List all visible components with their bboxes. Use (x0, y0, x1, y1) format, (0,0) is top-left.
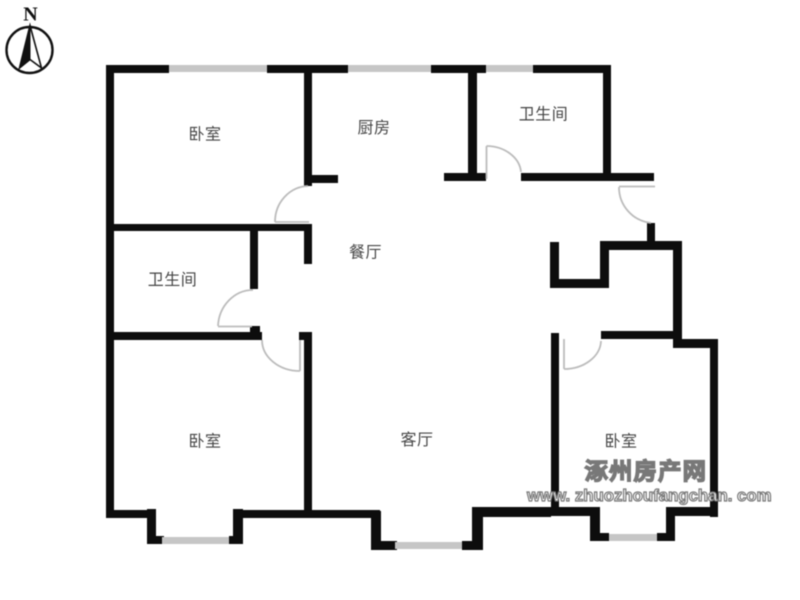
svg-text:涿州房产网: 涿州房产网 (585, 458, 708, 484)
svg-text:卫生间: 卫生间 (519, 106, 569, 124)
svg-text:卧室: 卧室 (604, 433, 637, 451)
svg-text:卧室: 卧室 (188, 433, 221, 451)
svg-text:卧室: 卧室 (188, 126, 221, 144)
svg-text:N: N (23, 4, 38, 26)
svg-text:餐厅: 餐厅 (349, 244, 382, 262)
svg-text:www. zhuozhoufangchan. com: www. zhuozhoufangchan. com (526, 486, 772, 505)
svg-text:客厅: 客厅 (400, 431, 433, 449)
svg-text:厨房: 厨房 (357, 119, 390, 137)
svg-text:卫生间: 卫生间 (148, 271, 198, 289)
